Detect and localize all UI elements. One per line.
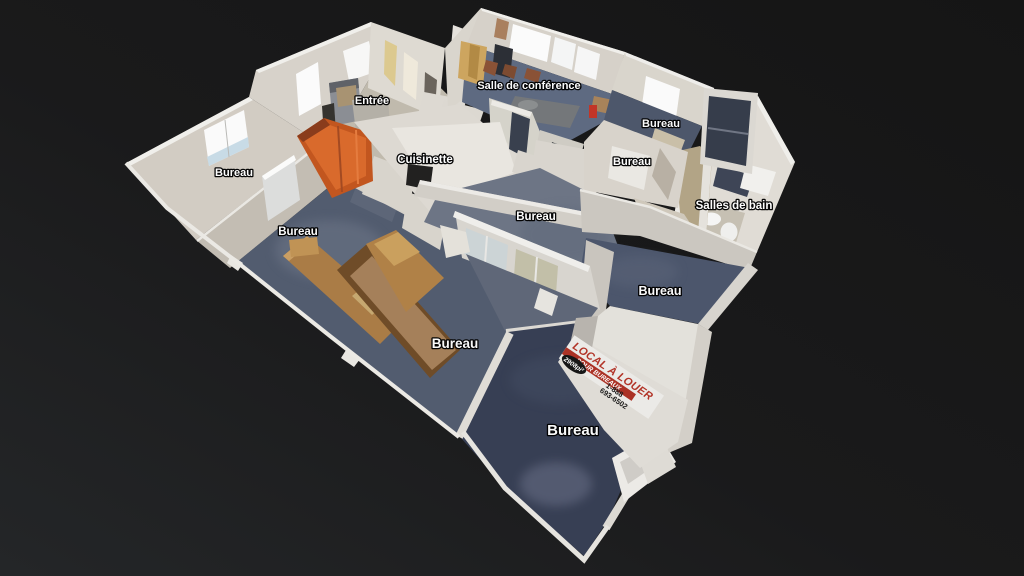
svg-text:Bureau: Bureau	[432, 336, 479, 351]
svg-text:Bureau: Bureau	[215, 167, 253, 179]
svg-text:Bureau: Bureau	[278, 226, 318, 238]
svg-text:Salles de bain: Salles de bain	[696, 200, 773, 212]
svg-text:Bureau: Bureau	[613, 156, 651, 168]
svg-text:Bureau: Bureau	[547, 422, 599, 439]
svg-text:Entrée: Entrée	[355, 95, 389, 107]
svg-text:Cuisinette: Cuisinette	[397, 154, 453, 166]
svg-text:Salle de conférence: Salle de conférence	[477, 80, 580, 92]
svg-text:Bureau: Bureau	[642, 118, 680, 130]
svg-text:Bureau: Bureau	[638, 284, 681, 298]
svg-text:Bureau: Bureau	[516, 211, 556, 223]
